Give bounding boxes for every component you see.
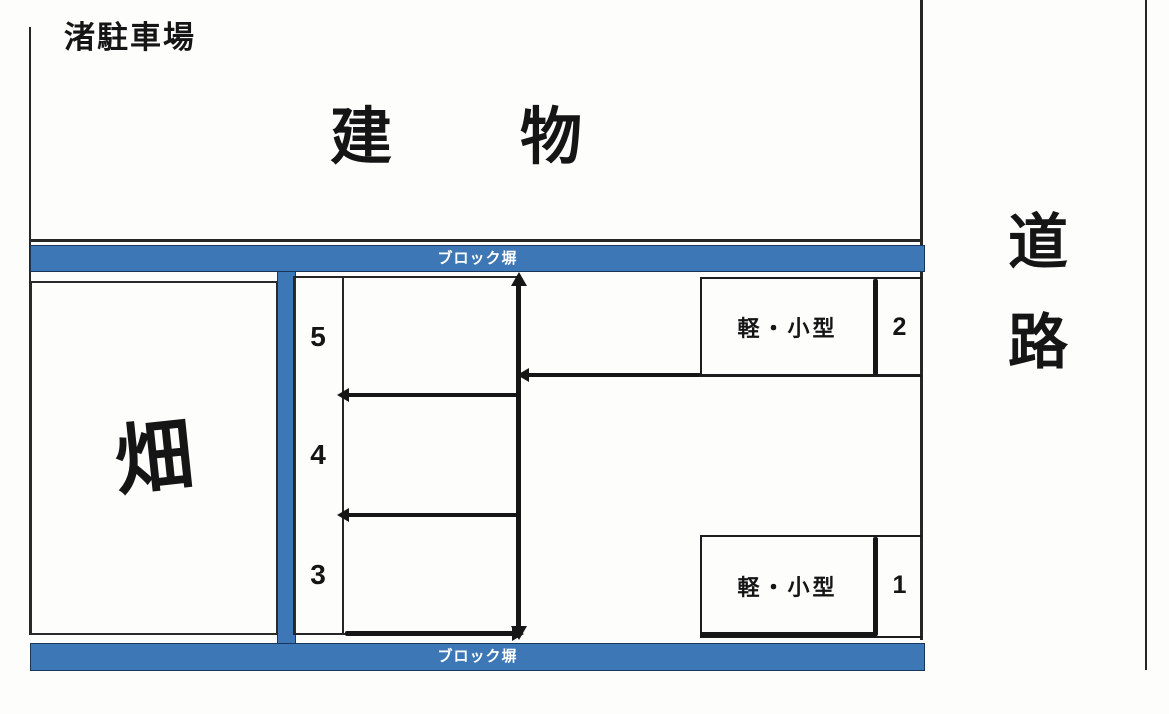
stall-column-right-thick-line (516, 279, 521, 633)
road-right-edge-line (1145, 0, 1147, 670)
block-wall-top-label: ブロック塀 (31, 246, 924, 271)
block-wall-top: ブロック塀 (30, 245, 925, 272)
building-bottom-line (30, 239, 923, 242)
stall-5-number: 5 (294, 279, 342, 394)
block-wall-bottom-label: ブロック塀 (31, 644, 924, 669)
parking-map: 渚駐車場 建物 道 路 ブロック塀 ブロック塀 畑 5 4 3 軽・小型 (0, 0, 1169, 714)
stall-1-type-label: 軽・小型 (702, 537, 873, 634)
divider-stall4-stall3-line (345, 513, 519, 517)
field-label: 畑 (111, 415, 197, 501)
arrowhead-right-icon (512, 627, 524, 641)
stall-column-number-divider-line (342, 277, 344, 635)
road-label-char-2: 路 (1008, 313, 1068, 373)
stall-column-bottom-thick-line (345, 631, 517, 636)
page-title: 渚駐車場 (64, 12, 196, 57)
field-box: 畑 (30, 281, 278, 635)
block-wall-bottom: ブロック塀 (30, 643, 925, 671)
road-label-char-1: 道 (1008, 213, 1068, 273)
driveway-guide-line (525, 373, 701, 377)
stall-2-number: 2 (878, 279, 921, 375)
stall-1-number: 1 (878, 537, 921, 634)
building-label: 建物 (330, 107, 710, 169)
stall-column-top-line (293, 276, 521, 278)
stall-2-type-label: 軽・小型 (702, 279, 873, 375)
arrowhead-left-icon (517, 368, 529, 382)
arrowhead-up-icon (511, 272, 527, 286)
stall-3-number: 3 (294, 518, 342, 632)
stall-4-number: 4 (294, 398, 342, 512)
divider-stall5-stall4-line (345, 393, 519, 397)
road-label: 道 路 (1003, 213, 1073, 373)
